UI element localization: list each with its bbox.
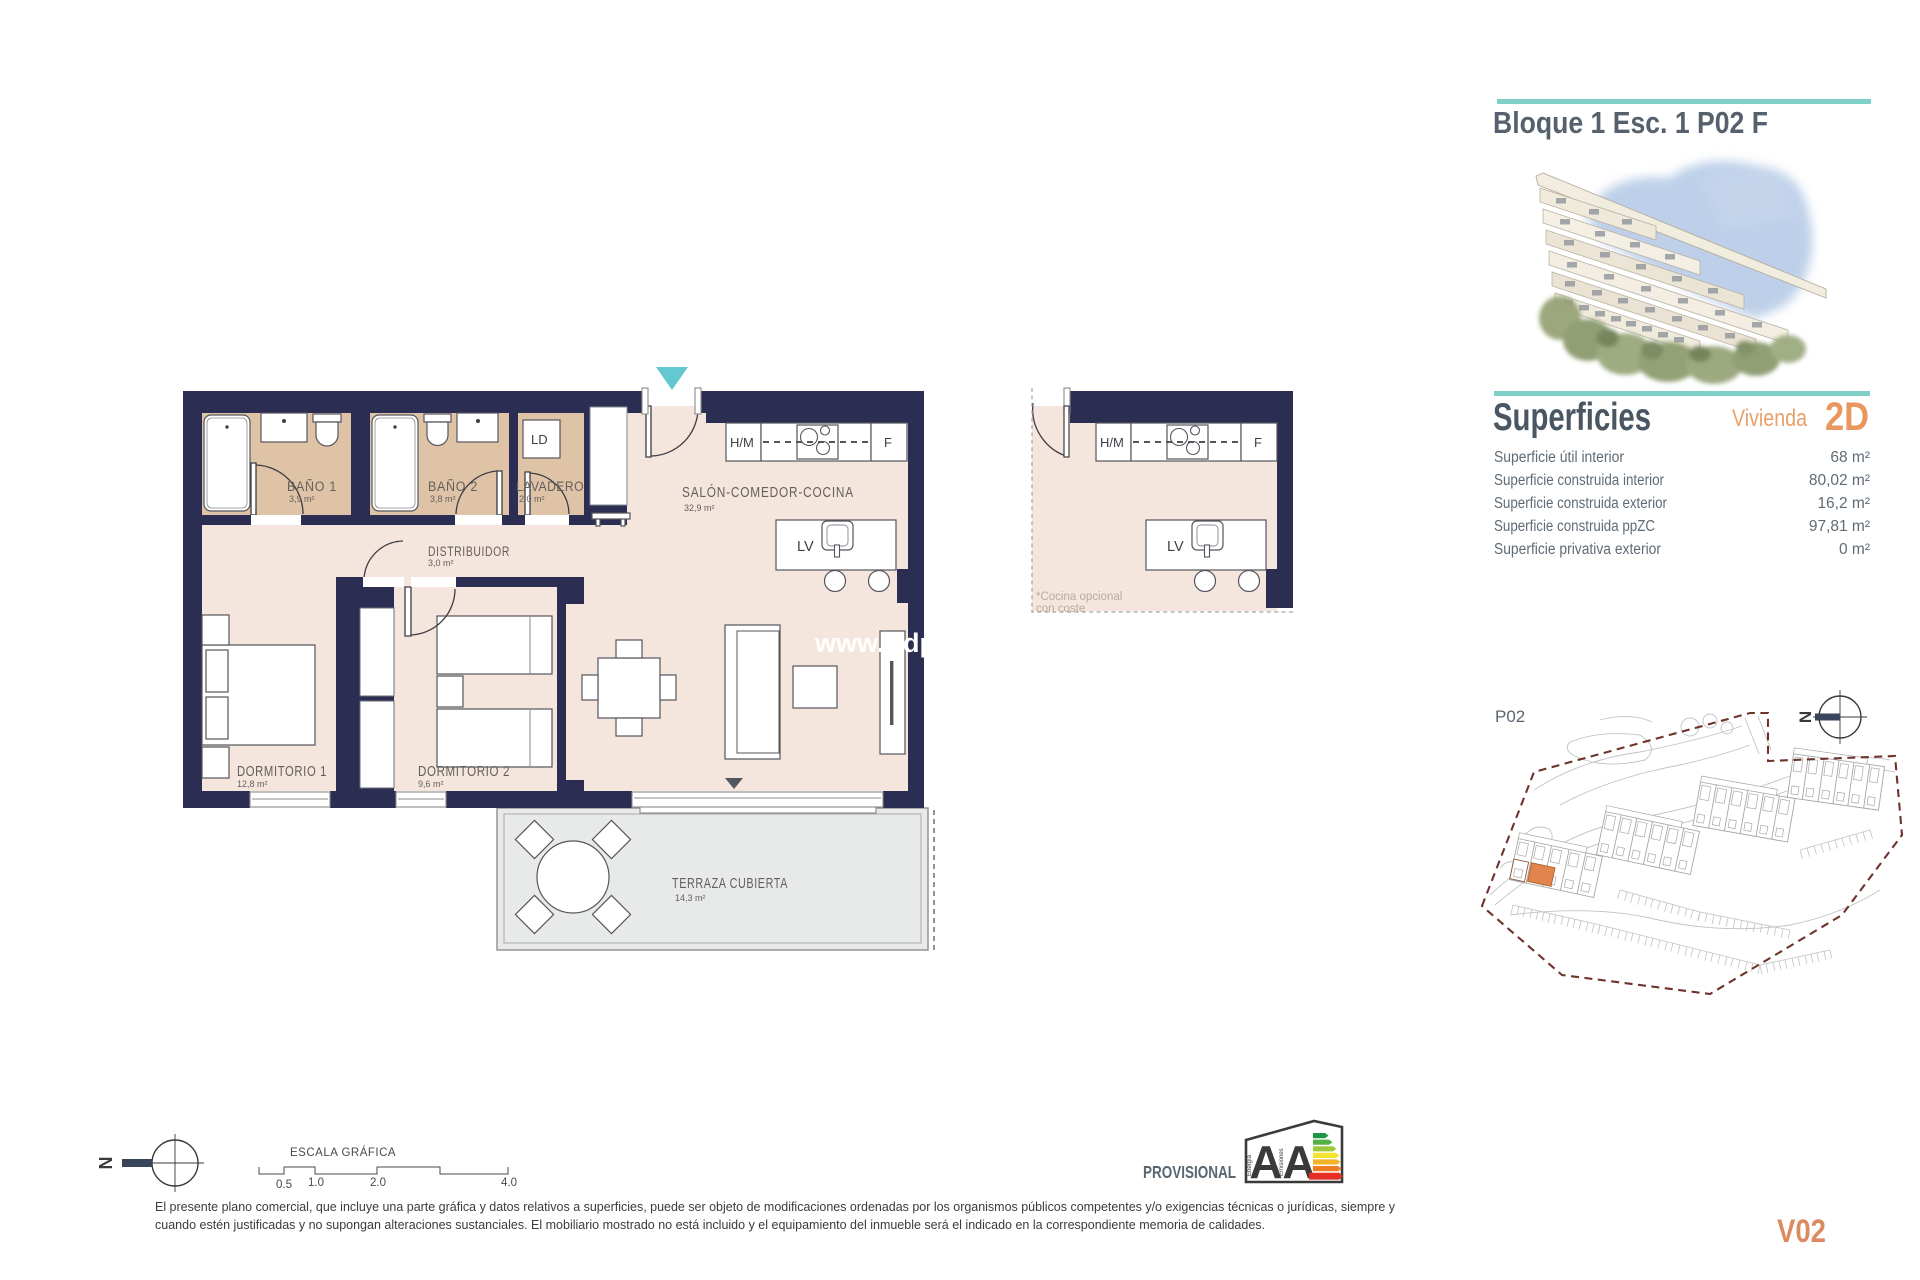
svg-text:El presente plano comercial, q: El presente plano comercial, que incluye… [155, 1199, 1395, 1214]
svg-text:N: N [1796, 711, 1815, 723]
svg-text:4.0: 4.0 [501, 1177, 517, 1189]
svg-text:LV: LV [797, 539, 814, 555]
svg-text:SALÓN-COMEDOR-COCINA: SALÓN-COMEDOR-COCINA [682, 484, 854, 501]
svg-text:0.5: 0.5 [276, 1179, 292, 1191]
svg-text:2,0 m²: 2,0 m² [519, 494, 545, 504]
svg-text:Vivienda: Vivienda [1732, 405, 1808, 432]
svg-text:F: F [1254, 435, 1262, 450]
svg-text:3,9 m²: 3,9 m² [289, 494, 315, 504]
svg-text:LAVADERO: LAVADERO [516, 479, 584, 494]
svg-text:2D: 2D [1825, 395, 1869, 439]
svg-text:PROVISIONAL: PROVISIONAL [1143, 1162, 1236, 1182]
svg-text:LV: LV [1167, 539, 1184, 555]
svg-text:A: A [1282, 1136, 1315, 1188]
svg-text:DORMITORIO 2: DORMITORIO 2 [418, 764, 510, 780]
svg-text:V02: V02 [1777, 1213, 1826, 1249]
svg-text:cuando estén justificadas y no: cuando estén justificadas y no supongan … [155, 1217, 1265, 1232]
svg-text:16,2 m²: 16,2 m² [1817, 495, 1870, 512]
svg-text:Superficie construida ppZC: Superficie construida ppZC [1494, 518, 1655, 535]
svg-text:con coste: con coste [1036, 603, 1085, 615]
svg-text:DISTRIBUIDOR: DISTRIBUIDOR [428, 544, 510, 559]
svg-text:68 m²: 68 m² [1830, 449, 1870, 466]
svg-text:3,8 m²: 3,8 m² [430, 494, 456, 504]
svg-text:H/M: H/M [730, 435, 754, 450]
svg-text:TERRAZA CUBIERTA: TERRAZA CUBIERTA [672, 876, 788, 892]
svg-text:H/M: H/M [1100, 435, 1124, 450]
svg-text:dp: dp [903, 628, 936, 658]
svg-text:Superficie construida exterior: Superficie construida exterior [1494, 495, 1667, 512]
svg-text:LD: LD [531, 432, 548, 447]
svg-text:DORMITORIO 1: DORMITORIO 1 [237, 764, 327, 780]
svg-text:Bloque 1 Esc. 1 P02 F: Bloque 1 Esc. 1 P02 F [1493, 105, 1768, 140]
svg-text:F: F [884, 435, 892, 450]
svg-text:0 m²: 0 m² [1839, 541, 1870, 558]
svg-text:97,81 m²: 97,81 m² [1809, 518, 1870, 535]
svg-text:14,3 m²: 14,3 m² [675, 893, 706, 903]
svg-text:BAÑO 1: BAÑO 1 [287, 479, 337, 494]
svg-text:P02: P02 [1495, 707, 1525, 726]
svg-text:3,0 m²: 3,0 m² [428, 558, 454, 568]
svg-text:Superficie construida interior: Superficie construida interior [1494, 472, 1664, 489]
svg-text:32,9 m²: 32,9 m² [684, 503, 715, 513]
svg-text:80,02 m²: 80,02 m² [1809, 472, 1870, 489]
svg-text:BAÑO 2: BAÑO 2 [428, 479, 478, 494]
svg-text:N: N [96, 1157, 116, 1170]
svg-text:12,8 m²: 12,8 m² [237, 779, 268, 789]
svg-text:*Cocina opcional: *Cocina opcional [1036, 591, 1122, 603]
svg-text:ESCALA GRÁFICA: ESCALA GRÁFICA [290, 1146, 396, 1159]
svg-text:Superficie privativa exterior: Superficie privativa exterior [1494, 541, 1661, 558]
svg-text:1.0: 1.0 [308, 1177, 324, 1189]
svg-text:Superficie útil interior: Superficie útil interior [1494, 449, 1624, 466]
svg-text:A: A [1249, 1136, 1282, 1188]
svg-text:Energía: Energía [1247, 1154, 1253, 1176]
svg-text:Emisiones: Emisiones [1279, 1148, 1285, 1176]
svg-text:2.0: 2.0 [370, 1177, 386, 1189]
svg-text:Superficies: Superficies [1493, 396, 1651, 439]
svg-text:www.: www. [814, 628, 885, 658]
svg-text:9,6 m²: 9,6 m² [418, 779, 444, 789]
